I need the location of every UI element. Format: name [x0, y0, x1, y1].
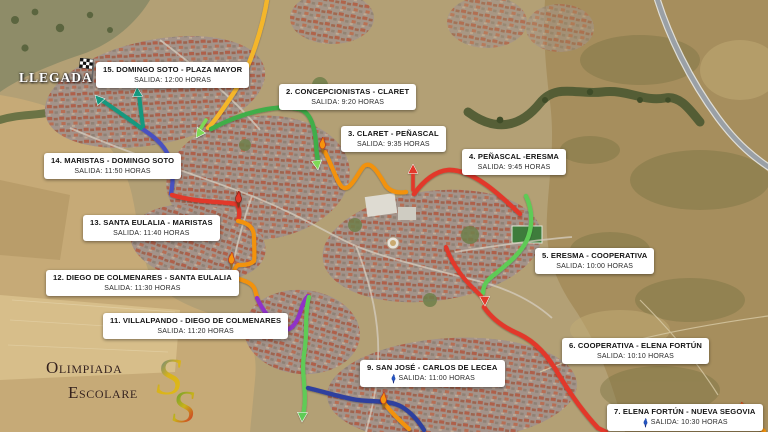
route-label-card-15: 15. DOMINGO SOTO - PLAZA MAYOR SALIDA: 1… — [96, 62, 249, 88]
route-label-card-6: 6. COOPERATIVA - ELENA FORTÚN SALIDA: 10… — [562, 338, 709, 364]
torch-icon — [232, 191, 245, 208]
torch-icon — [225, 252, 238, 269]
svg-text:S: S — [172, 381, 195, 432]
route-segment-5-green — [483, 196, 531, 293]
route-label-subtitle: SALIDA: 9:20 HORAS — [311, 98, 384, 107]
route-label-title: 6. COOPERATIVA - ELENA FORTÚN — [569, 341, 702, 351]
torch-icon — [390, 374, 397, 384]
torch-icon — [316, 137, 329, 154]
olimpiadas-escolares-logo: Olimpiada Escolare S S — [38, 350, 228, 430]
route-label-card-7: 7. ELENA FORTÚN - NUEVA SEGOVIA SALIDA: … — [607, 404, 763, 431]
route-segment-15-teal-b — [139, 94, 143, 126]
route-segment-9-navy — [308, 388, 424, 430]
route-label-title: 11. VILLALPANDO - DIEGO DE COLMENARES — [110, 316, 281, 326]
route-label-subtitle: SALIDA: 10:10 HORAS — [597, 352, 674, 361]
route-label-card-4: 4. PEÑASCAL -ERESMA SALIDA: 9:45 HORAS — [462, 149, 566, 175]
route-label-title: 12. DIEGO DE COLMENARES - SANTA EULALIA — [53, 273, 232, 283]
arrow-penascal-icon — [408, 164, 418, 174]
route-label-subtitle: SALIDA: 10:30 HORAS — [651, 418, 728, 427]
route-label-title: 13. SANTA EULALIA - MARISTAS — [90, 218, 213, 228]
route-label-card-3: 3. CLARET - PEÑASCAL SALIDA: 9:35 HORAS — [341, 126, 446, 152]
torch-icon — [642, 418, 649, 428]
route-label-title: 5. ERESMA - COOPERATIVA — [542, 251, 647, 261]
route-label-title: 9. SAN JOSÉ - CARLOS DE LECEA — [367, 363, 498, 373]
route-segment-5-red-link — [446, 247, 481, 296]
route-segment-15-teal-a — [103, 101, 141, 128]
route-label-title: 15. DOMINGO SOTO - PLAZA MAYOR — [103, 65, 242, 75]
route-label-title: 2. CONCEPCIONISTAS - CLARET — [286, 87, 409, 97]
route-segment-10-green — [303, 297, 309, 415]
logo-word-olimpiadas: Olimpiada — [46, 358, 122, 378]
arrow-cooperativa-icon — [480, 296, 490, 306]
route-label-card-13: 13. SANTA EULALIA - MARISTAS SALIDA: 11:… — [83, 215, 220, 241]
torch-icon — [377, 392, 390, 409]
arrow-domingo-icon — [192, 127, 206, 141]
logo-word-escolares: Escolare — [68, 383, 138, 403]
olympic-s-swoosh-icon: S S — [150, 346, 228, 432]
route-label-card-5: 5. ERESMA - COOPERATIVA SALIDA: 10:00 HO… — [535, 248, 654, 274]
route-label-card-2: 2. CONCEPCIONISTAS - CLARET SALIDA: 9:20… — [279, 84, 416, 110]
route-label-subtitle: SALIDA: 11:20 HORAS — [157, 327, 233, 336]
route-segment-2-green — [211, 108, 318, 162]
route-label-subtitle: SALIDA: 11:30 HORAS — [104, 284, 180, 293]
route-label-card-11: 11. VILLALPANDO - DIEGO DE COLMENARES SA… — [103, 313, 288, 339]
route-label-title: 3. CLARET - PEÑASCAL — [348, 129, 439, 139]
route-label-title: 7. ELENA FORTÚN - NUEVA SEGOVIA — [614, 407, 756, 417]
relay-route-map: LLEGADA 15. DOMINGO SOTO - PLAZA MAYOR S… — [0, 0, 768, 432]
arrow-sanjose-icon — [297, 412, 307, 422]
route-segment-4-red — [414, 170, 520, 214]
route-label-subtitle: SALIDA: 11:50 HORAS — [74, 167, 150, 176]
route-label-subtitle: SALIDA: 12:00 HORAS — [134, 76, 211, 85]
route-label-card-12: 12. DIEGO DE COLMENARES - SANTA EULALIA … — [46, 270, 239, 296]
route-label-subtitle: SALIDA: 9:35 HORAS — [357, 140, 430, 149]
finish-label: LLEGADA — [19, 70, 93, 86]
route-label-subtitle: SALIDA: 11:00 HORAS — [399, 374, 475, 383]
route-segment-3-orange — [325, 152, 406, 192]
route-label-subtitle: SALIDA: 11:40 HORAS — [113, 229, 189, 238]
arrow-plaza-icon — [132, 87, 143, 97]
route-label-card-9: 9. SAN JOSÉ - CARLOS DE LECEA SALIDA: 11… — [360, 360, 505, 387]
route-label-title: 14. MARISTAS - DOMINGO SOTO — [51, 156, 174, 166]
route-label-title: 4. PEÑASCAL -ERESMA — [469, 152, 559, 162]
arrow-claret-icon — [312, 160, 323, 171]
route-label-card-14: 14. MARISTAS - DOMINGO SOTO SALIDA: 11:5… — [44, 153, 181, 179]
route-label-subtitle: SALIDA: 9:45 HORAS — [478, 163, 551, 172]
route-label-subtitle: SALIDA: 10:00 HORAS — [556, 262, 633, 271]
